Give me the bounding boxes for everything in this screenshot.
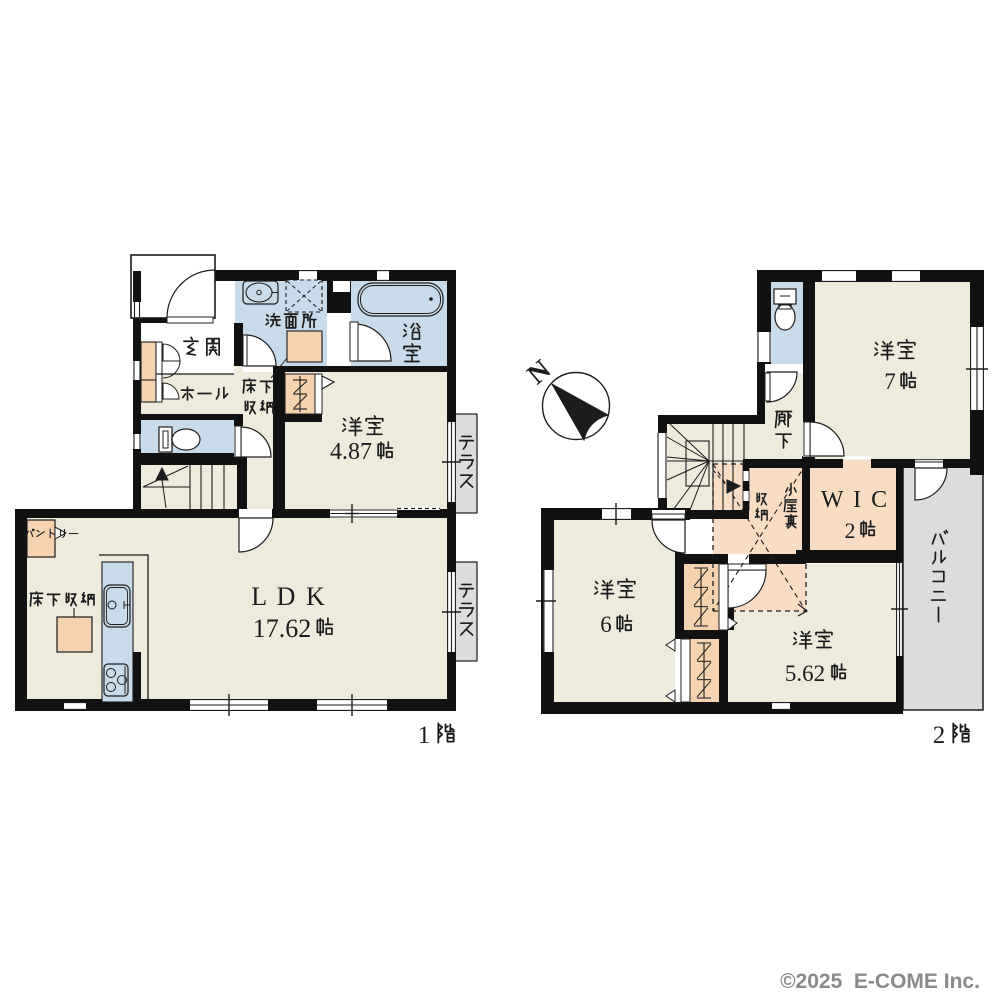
svg-text:4.87: 4.87 [330,439,372,465]
svg-text:2: 2 [845,518,856,543]
svg-text:2: 2 [933,722,946,749]
svg-text:L D K: L D K [251,582,326,611]
svg-text:1: 1 [418,722,431,749]
svg-text:7: 7 [884,369,896,394]
svg-text:17.62: 17.62 [253,614,312,643]
svg-text:5.62: 5.62 [785,661,825,686]
svg-text:W I C: W I C [821,487,889,513]
svg-text:6: 6 [600,612,612,637]
svg-text:©2025 E-COME Inc.: ©2025 E-COME Inc. [780,970,980,993]
